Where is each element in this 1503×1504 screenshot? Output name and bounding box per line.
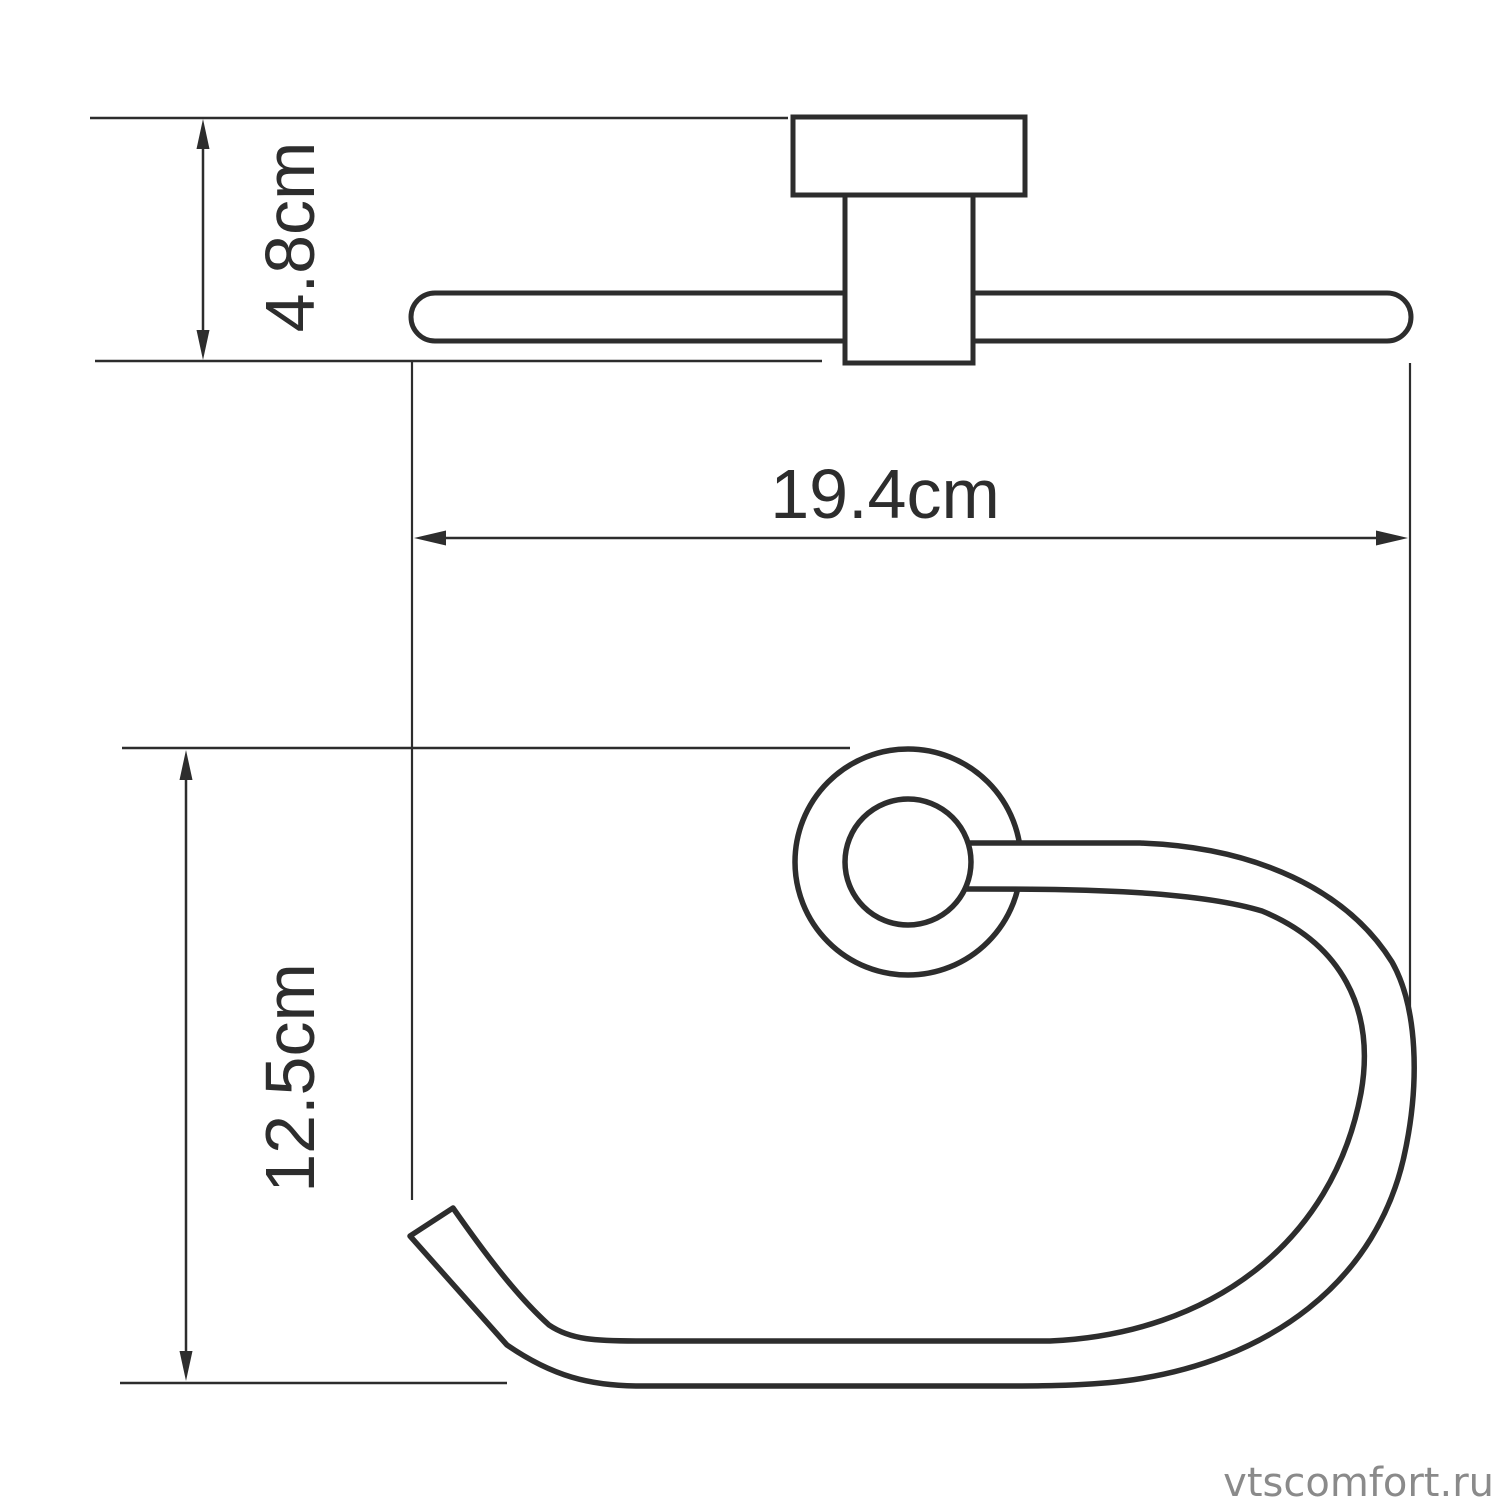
technical-drawing-page: 4.8cm 19.4cm 12.5cm vtscomfort.ru (0, 0, 1503, 1504)
arrow-left-head-icon (414, 531, 446, 546)
rosette-inner-circle (845, 799, 971, 925)
arrow-down-head-icon (180, 1351, 193, 1381)
arrow-up-head-icon (180, 750, 193, 780)
wall-plate (793, 117, 1025, 195)
arrow-down-head-icon (197, 330, 210, 360)
arrow-right-head-icon (1376, 531, 1408, 546)
watermark-text: vtscomfort.ru (1223, 1460, 1494, 1504)
dim-label-overall-width: 19.4cm (770, 455, 1000, 533)
arrow-up-head-icon (197, 119, 210, 149)
mount-post (845, 195, 973, 363)
towel-ring-dimension-drawing: 4.8cm 19.4cm 12.5cm vtscomfort.ru (0, 0, 1503, 1504)
dim-label-ring-height: 12.5cm (251, 963, 329, 1193)
dim-label-mount-depth: 4.8cm (251, 142, 329, 333)
